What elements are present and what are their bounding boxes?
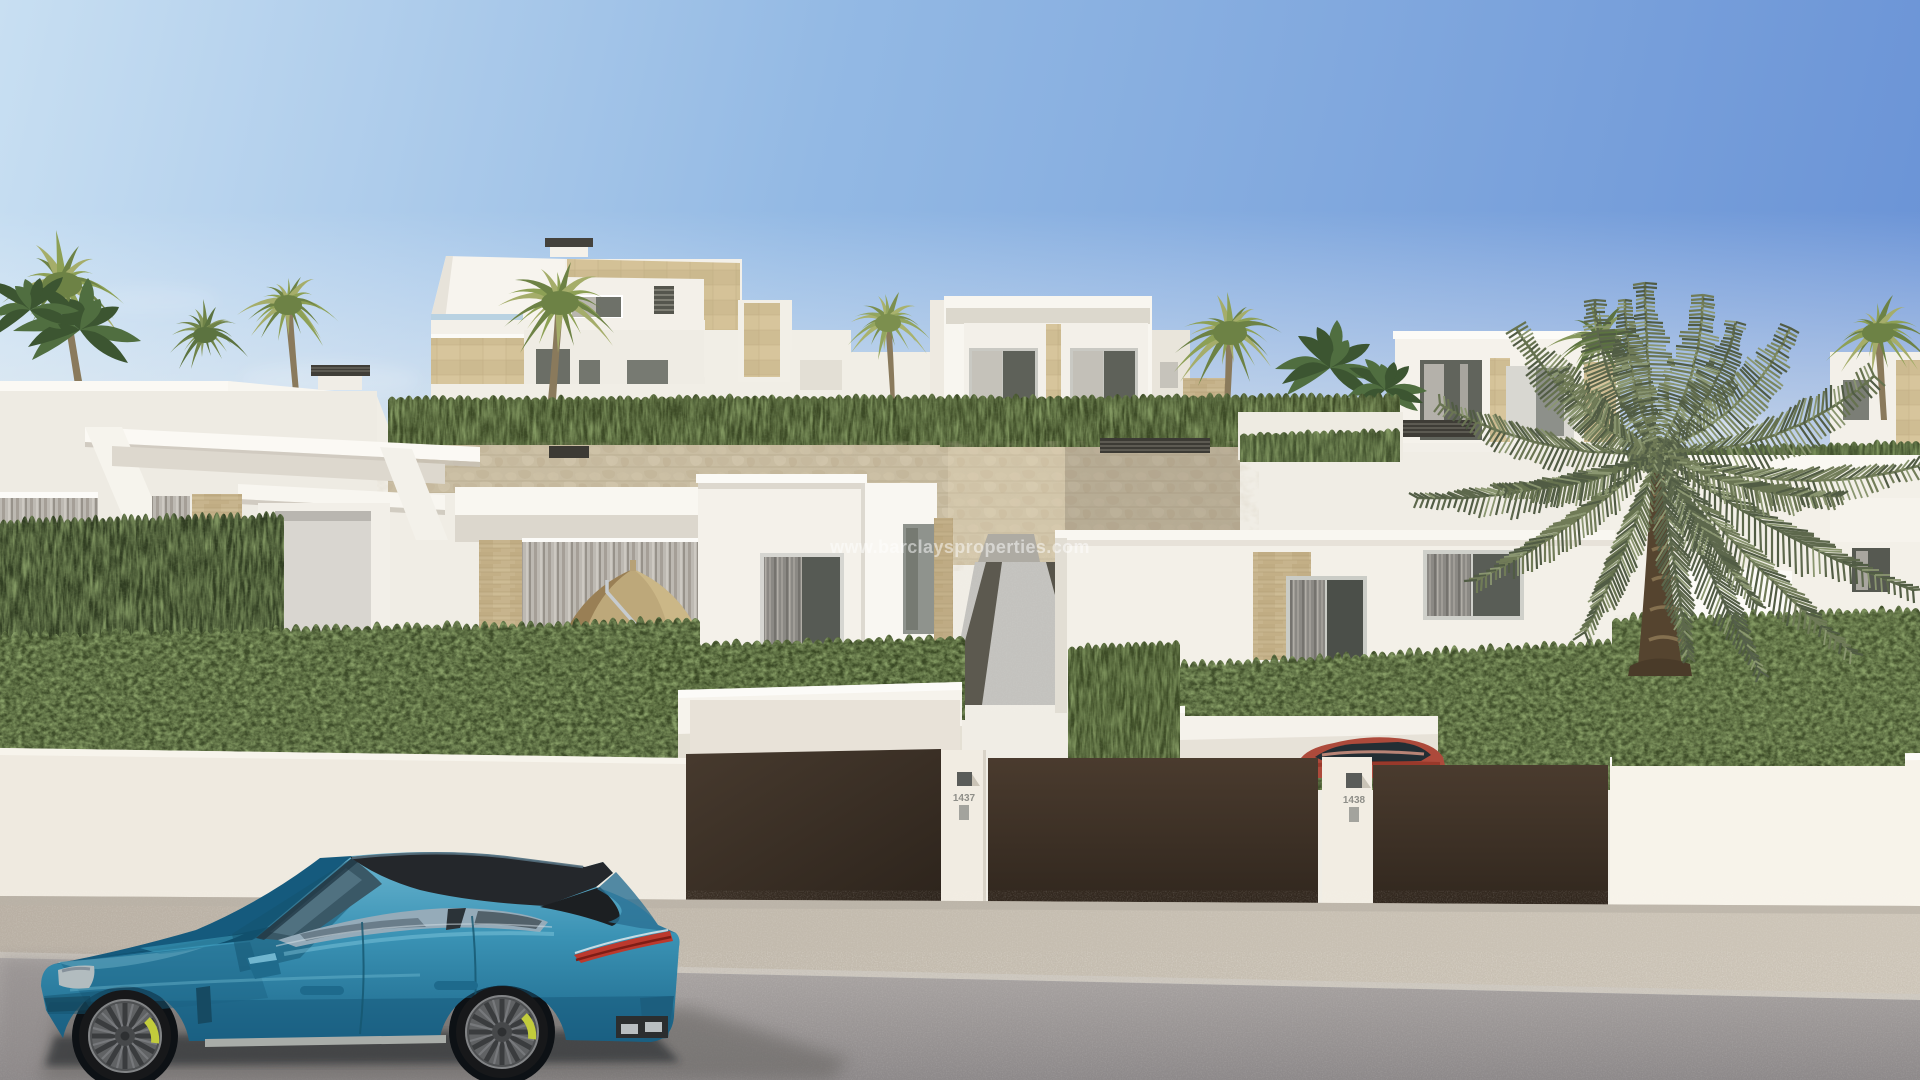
svg-text:1438: 1438	[1343, 795, 1366, 806]
svg-text:www.barclaysproperties.com: www.barclaysproperties.com	[829, 537, 1090, 557]
svg-text:1437: 1437	[953, 793, 976, 804]
